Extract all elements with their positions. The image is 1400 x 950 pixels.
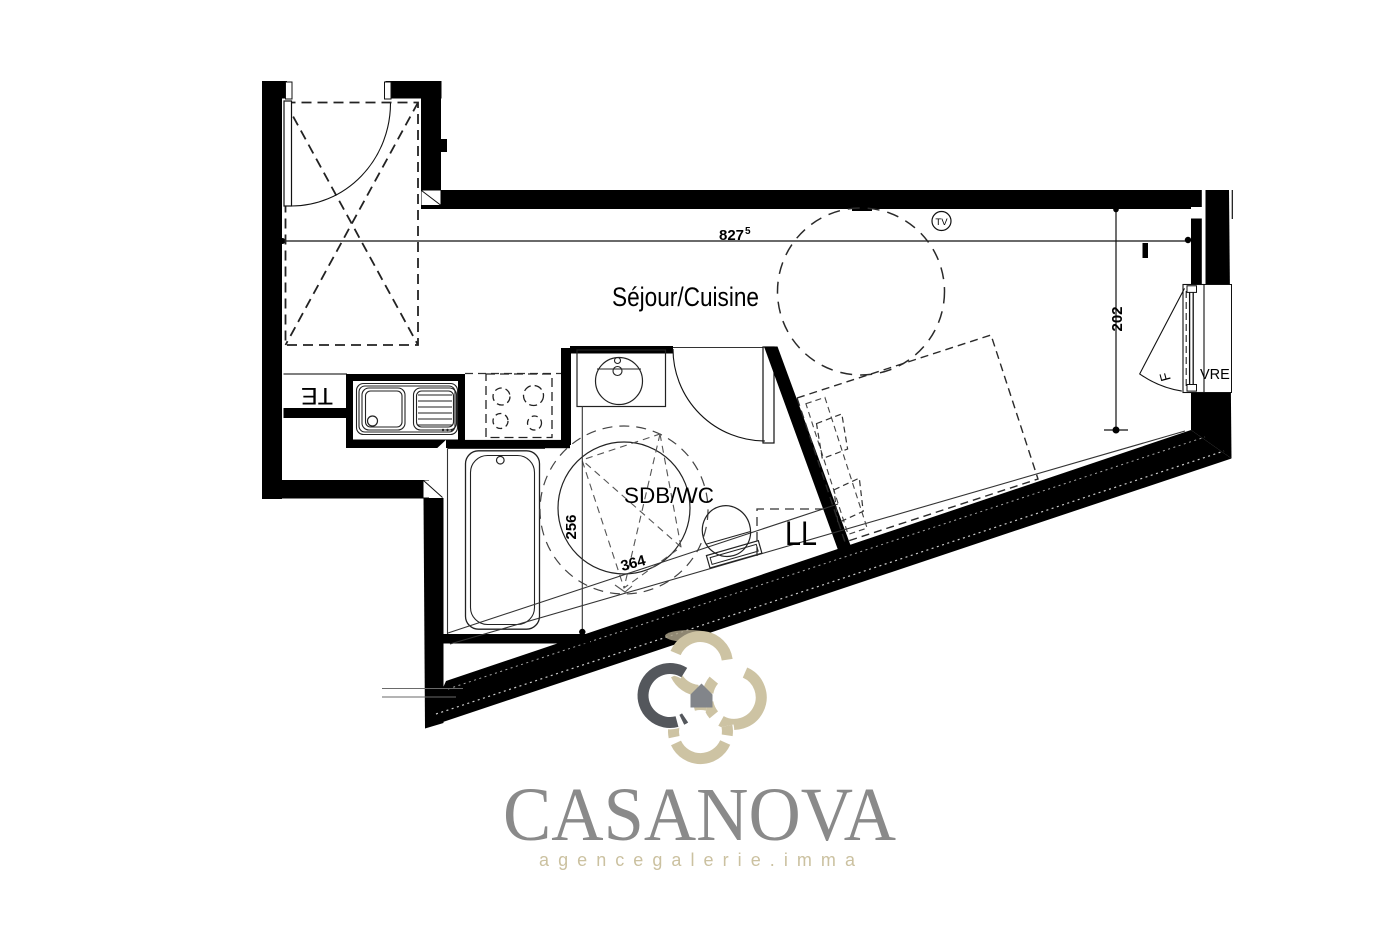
svg-text:agencegalerie.imma: agencegalerie.imma <box>539 850 863 870</box>
svg-text:256: 256 <box>563 514 580 539</box>
svg-text:SDB/WC: SDB/WC <box>624 483 714 508</box>
svg-text:VRE: VRE <box>1200 367 1230 383</box>
svg-text:CASANOVA: CASANOVA <box>503 773 896 857</box>
svg-text:TE: TE <box>301 382 333 409</box>
svg-text:Séjour/Cuisine: Séjour/Cuisine <box>612 282 759 312</box>
svg-text:TV: TV <box>935 217 948 228</box>
svg-text:827: 827 <box>719 227 744 244</box>
svg-text:202: 202 <box>1109 306 1126 331</box>
svg-text:LL: LL <box>785 515 817 553</box>
svg-text:5: 5 <box>745 226 751 237</box>
